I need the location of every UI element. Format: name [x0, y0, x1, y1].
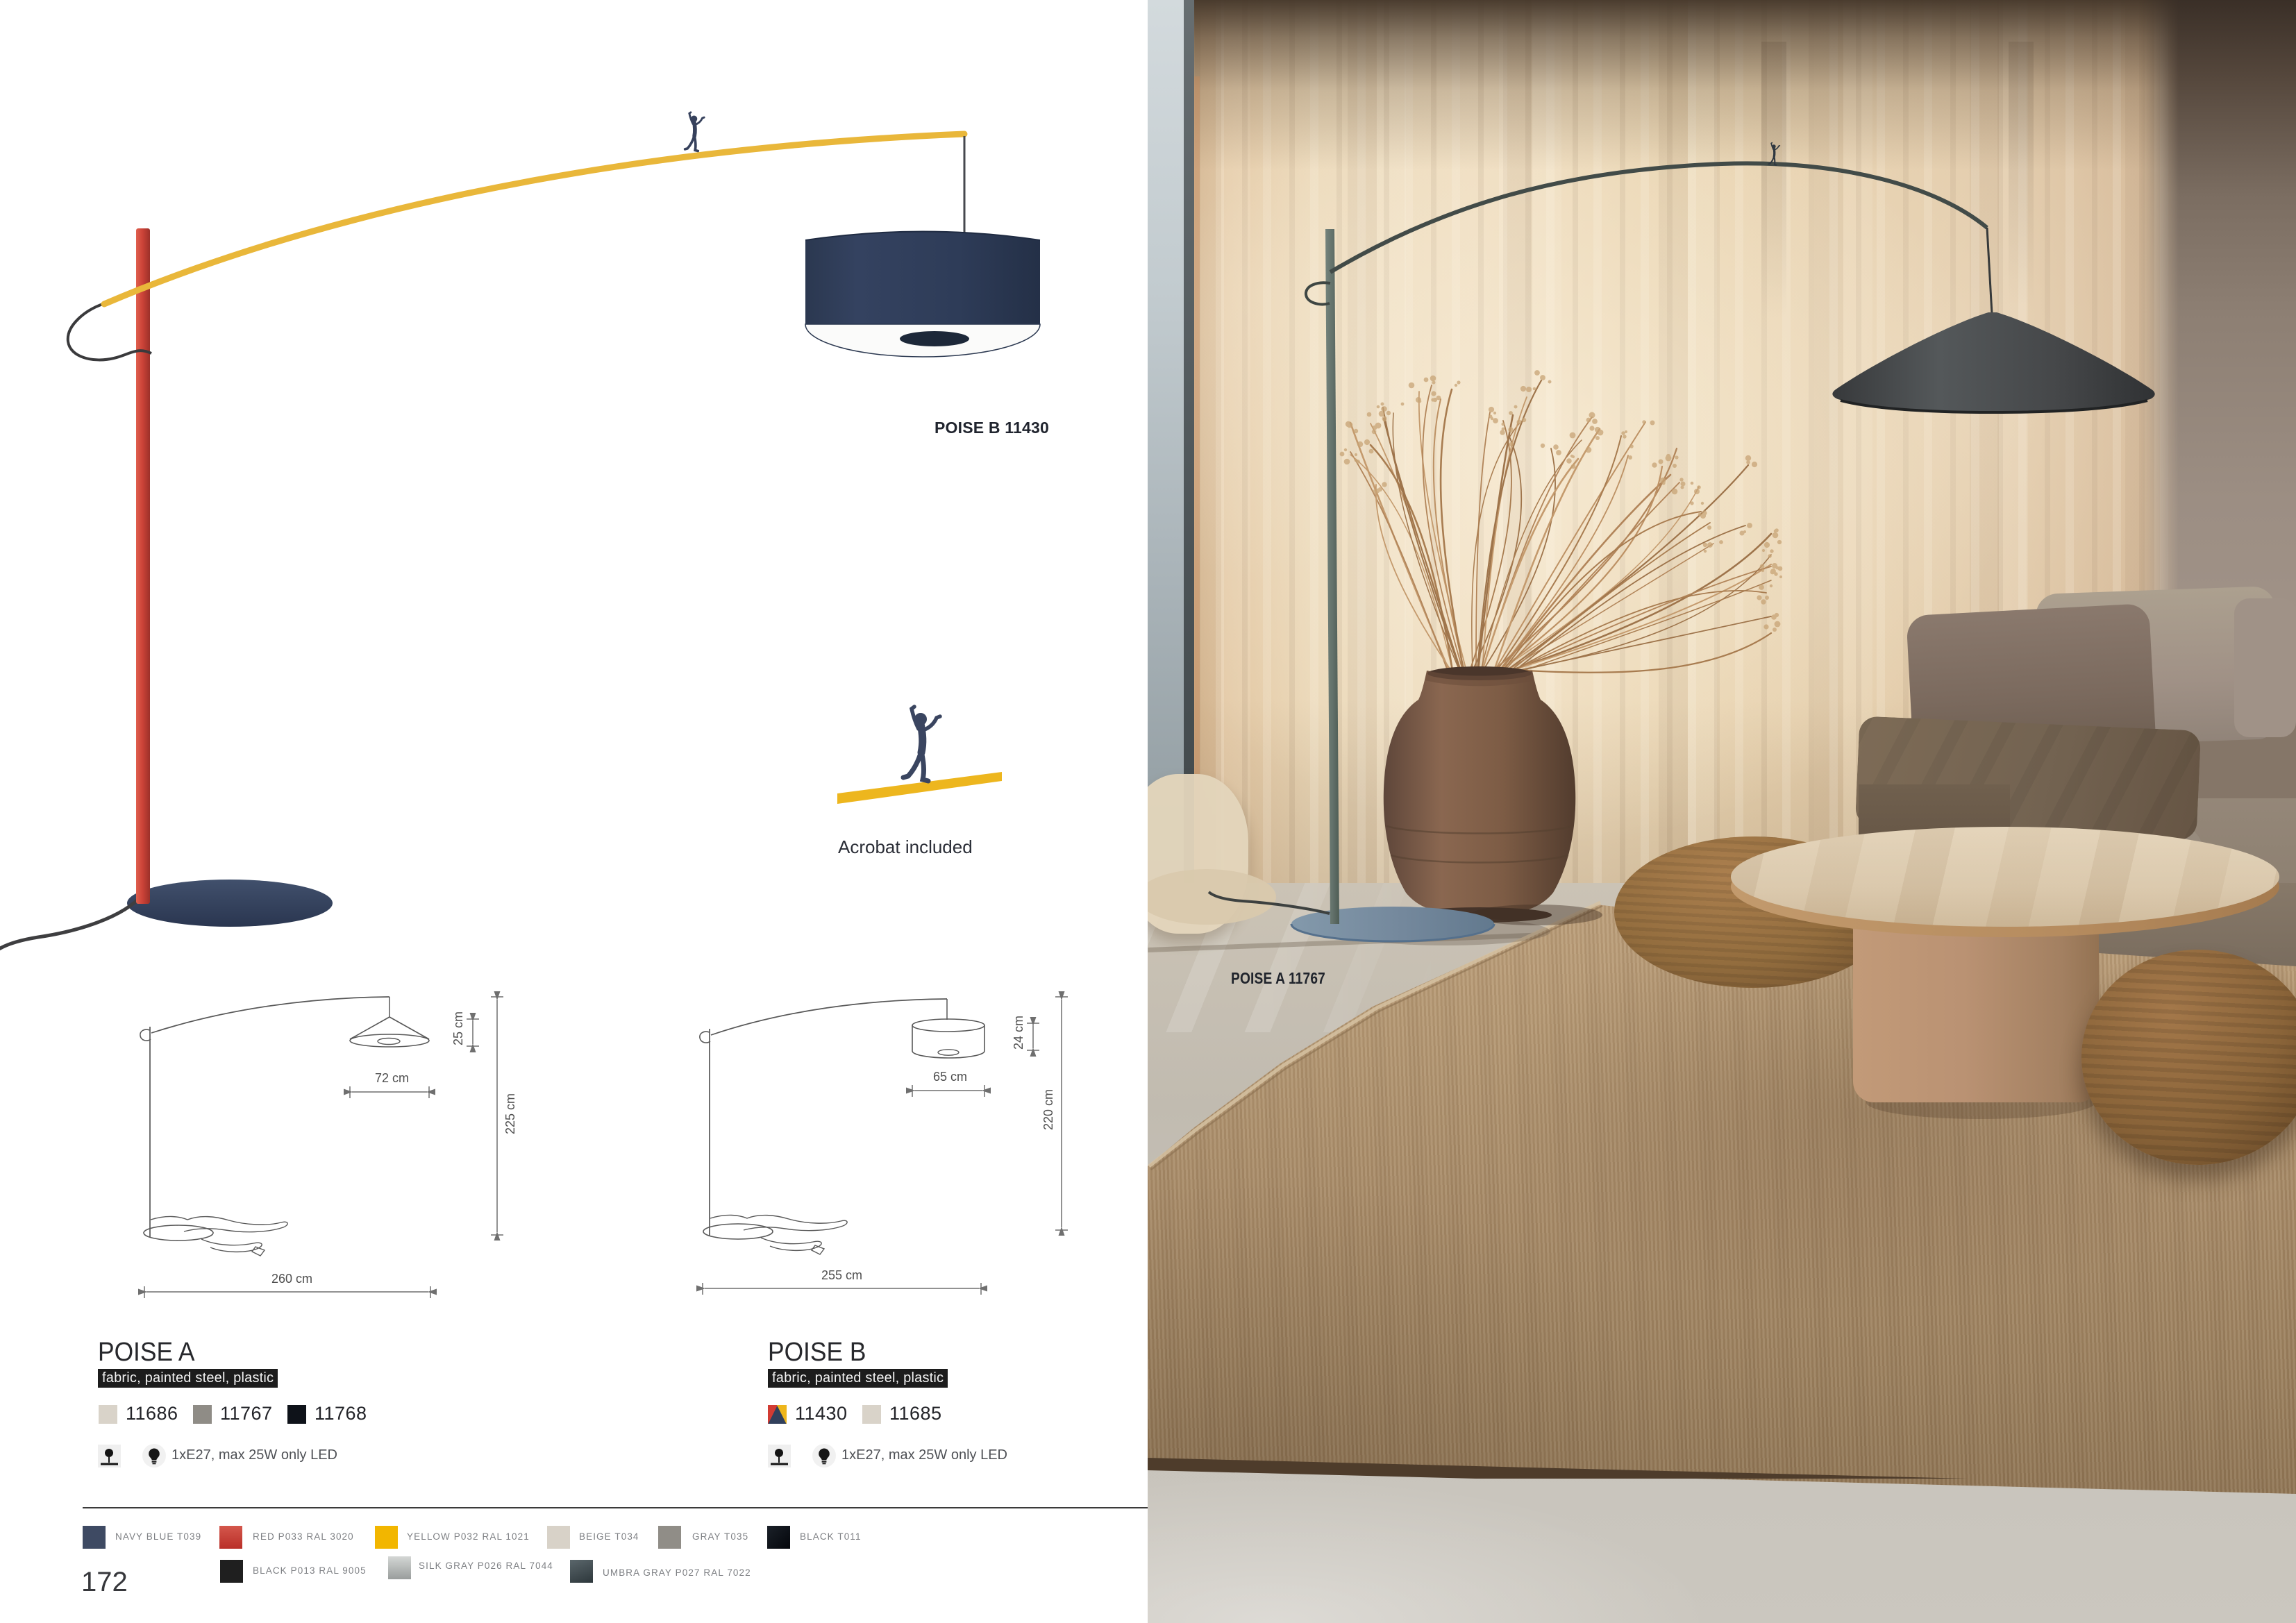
svg-text:65 cm: 65 cm: [933, 1070, 967, 1084]
svg-text:220 cm: 220 cm: [1041, 1089, 1055, 1130]
svg-text:24 cm: 24 cm: [1012, 1016, 1025, 1050]
svg-text:255 cm: 255 cm: [821, 1268, 862, 1282]
svg-text:25 cm: 25 cm: [451, 1011, 465, 1045]
svg-text:225 cm: 225 cm: [503, 1093, 517, 1134]
svg-text:260 cm: 260 cm: [271, 1272, 312, 1286]
svg-text:72 cm: 72 cm: [375, 1071, 409, 1085]
svg-text:POISE A 11767: POISE A 11767: [1231, 969, 1325, 987]
